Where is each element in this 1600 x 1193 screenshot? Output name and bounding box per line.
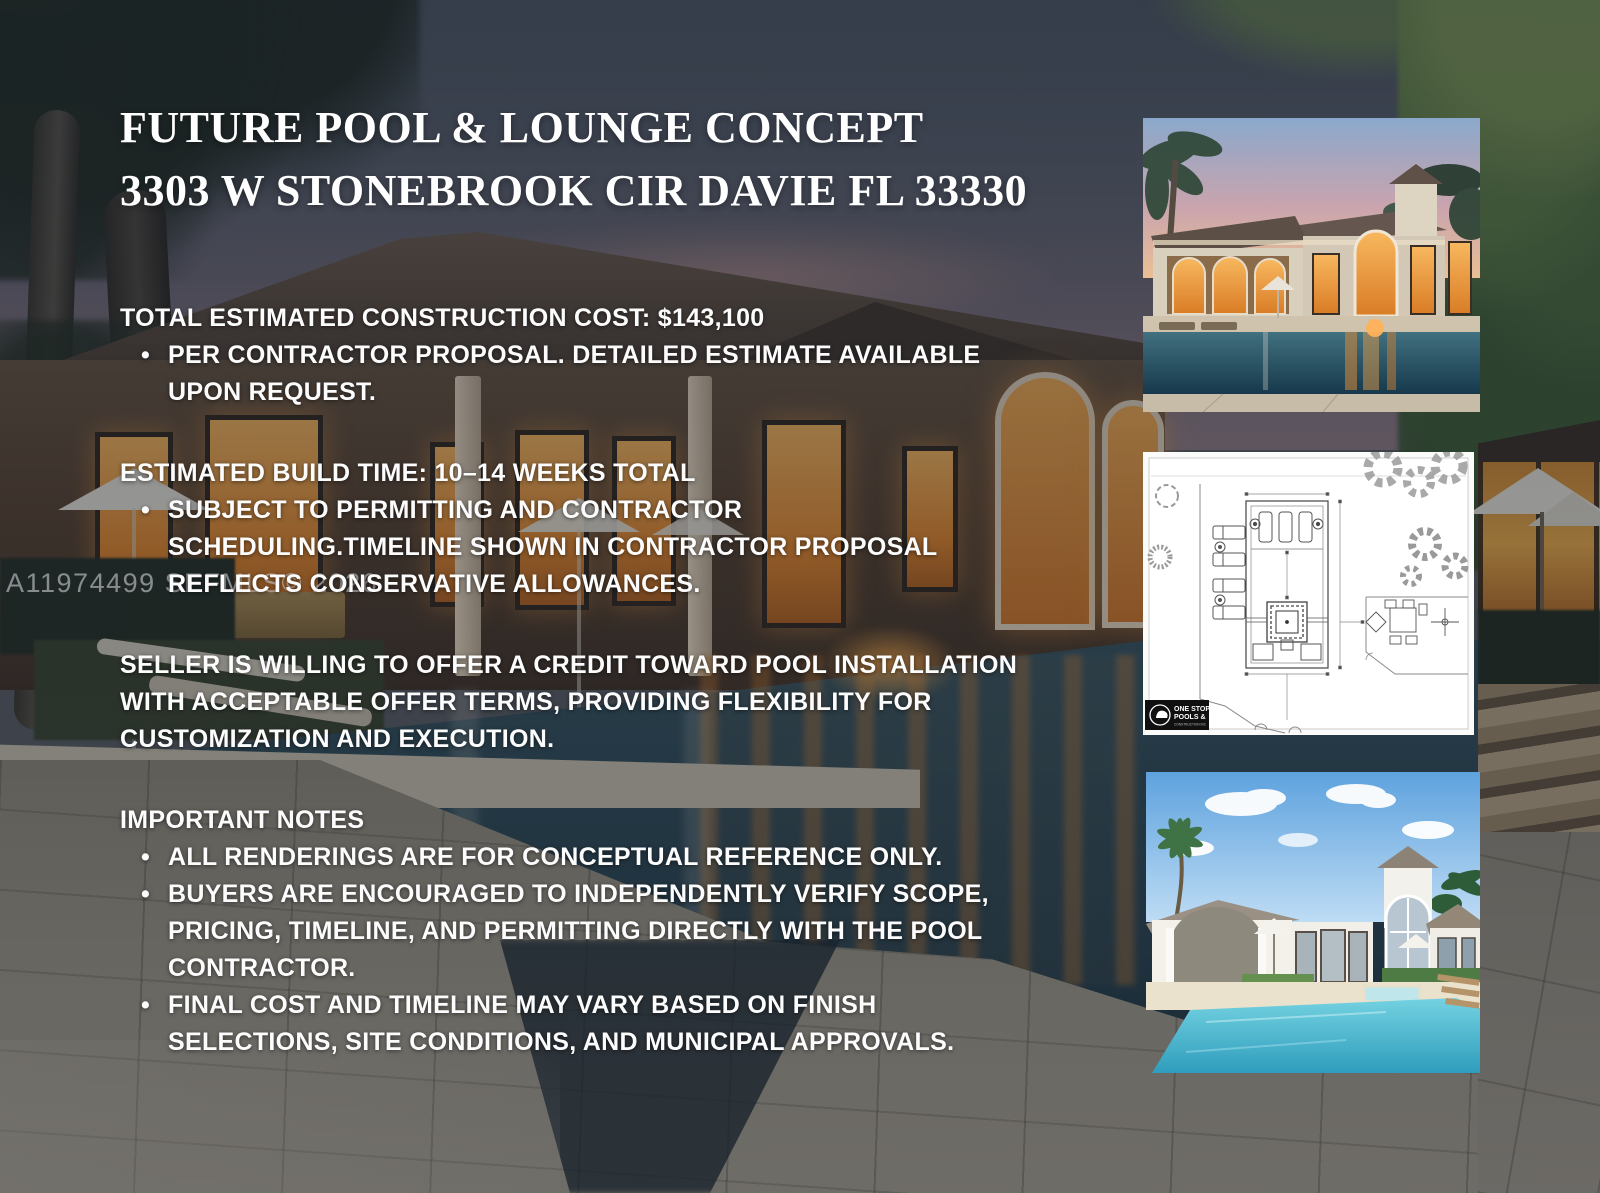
section-build-time: ESTIMATED BUILD TIME: 10–14 WEEKS TOTAL … bbox=[120, 455, 1090, 603]
logo-line-2: POOLS & bbox=[1174, 714, 1206, 721]
build-time-bullets: SUBJECT TO PERMITTING AND CONTRACTOR SCH… bbox=[120, 492, 1090, 603]
pool-area bbox=[1146, 974, 1480, 1073]
body-copy: TOTAL ESTIMATED CONSTRUCTION COST: $143,… bbox=[120, 300, 1090, 1061]
inset-photo-day-pool bbox=[1146, 772, 1480, 1073]
cost-bullets: PER CONTRACTOR PROPOSAL. DETAILED ESTIMA… bbox=[120, 337, 1090, 411]
seller-credit-paragraph: SELLER IS WILLING TO OFFER A CREDIT TOWA… bbox=[120, 647, 1070, 758]
bullet-item: SUBJECT TO PERMITTING AND CONTRACTOR SCH… bbox=[120, 492, 998, 603]
important-notes-bullets: ALL RENDERINGS ARE FOR CONCEPTUAL REFERE… bbox=[120, 839, 1090, 1061]
listing-flyer: A11974499 SEFMLS© 2026 FUTURE POOL & LOU… bbox=[0, 0, 1600, 1193]
bullet-item: ALL RENDERINGS ARE FOR CONCEPTUAL REFERE… bbox=[120, 839, 1048, 876]
page-title: FUTURE POOL & LOUNGE CONCEPT 3303 W STON… bbox=[120, 96, 1027, 222]
title-line-1: FUTURE POOL & LOUNGE CONCEPT bbox=[120, 96, 1027, 159]
bullet-item: BUYERS ARE ENCOURAGED TO INDEPENDENTLY V… bbox=[120, 876, 1048, 987]
inset-blueprint-pool-plan: ONE STOP POOLS & CONSTRUCTION INC bbox=[1143, 452, 1474, 735]
inset-photo-dusk-pool bbox=[1143, 118, 1480, 412]
bullet-item: FINAL COST AND TIMELINE MAY VARY BASED O… bbox=[120, 987, 1048, 1061]
section-cost: TOTAL ESTIMATED CONSTRUCTION COST: $143,… bbox=[120, 300, 1090, 411]
bullet-item: PER CONTRACTOR PROPOSAL. DETAILED ESTIMA… bbox=[120, 337, 998, 411]
cost-heading: TOTAL ESTIMATED CONSTRUCTION COST: $143,… bbox=[120, 300, 1090, 337]
logo-line-1: ONE STOP bbox=[1174, 706, 1210, 713]
pool-water bbox=[1143, 319, 1480, 412]
section-seller-credit: SELLER IS WILLING TO OFFER A CREDIT TOWA… bbox=[120, 647, 1090, 758]
logo-line-3: CONSTRUCTION INC bbox=[1174, 723, 1207, 727]
build-time-heading: ESTIMATED BUILD TIME: 10–14 WEEKS TOTAL bbox=[120, 455, 1090, 492]
section-important-notes: IMPORTANT NOTES ALL RENDERINGS ARE FOR C… bbox=[120, 802, 1090, 1061]
pool-builder-logo: ONE STOP POOLS & CONSTRUCTION INC bbox=[1145, 700, 1210, 730]
important-notes-heading: IMPORTANT NOTES bbox=[120, 802, 1090, 839]
title-line-2: 3303 W STONEBROOK CIR DAVIE FL 33330 bbox=[120, 159, 1027, 222]
